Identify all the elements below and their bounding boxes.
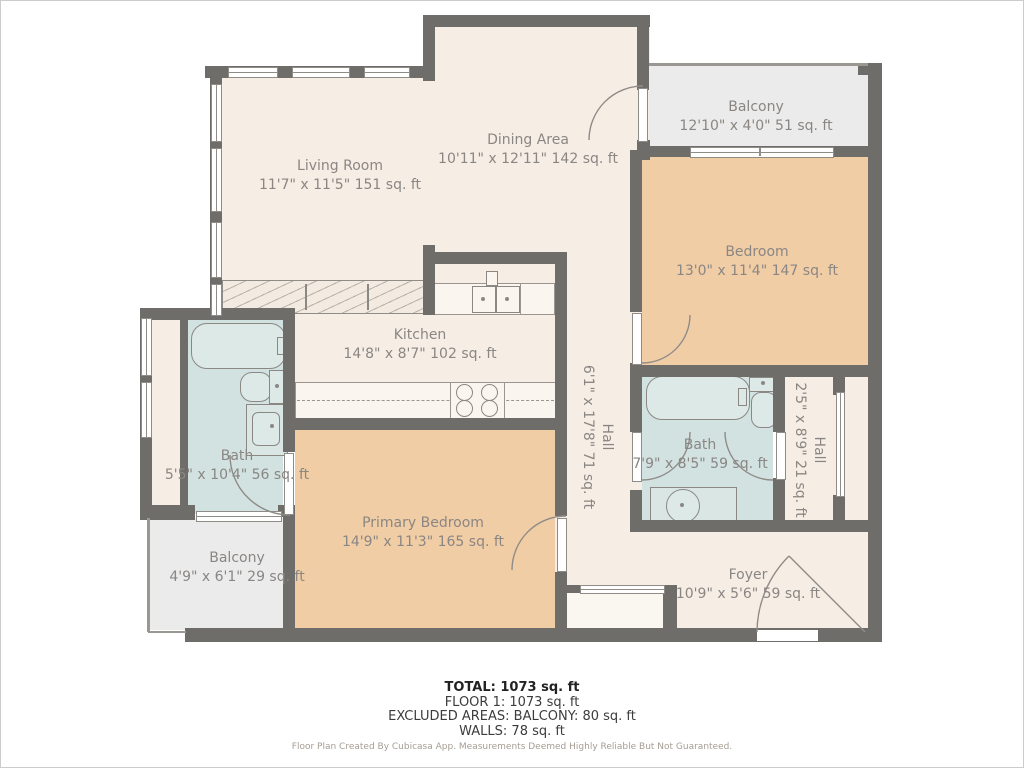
room-label-bedroom: Bedroom 13'0" x 11'4" 147 sq. ft [676,243,838,281]
room-dims: 14'9" x 11'3" 165 sq. ft [342,533,504,552]
room-dims: 6'1" x 17'8" 71 sq. ft [578,365,597,509]
room-name: Living Room [259,157,421,176]
room-name: Bath [632,436,767,455]
room-dims: 5'5" x 10'4" 56 sq. ft [165,466,309,485]
room-dims: 2'5" x 8'9" 21 sq. ft [790,382,809,517]
room-dims: 7'9" x 8'5" 59 sq. ft [632,455,767,474]
summary-excluded: EXCLUDED AREAS: BALCONY: 80 sq. ft [0,710,1024,725]
room-label-dining-area: Dining Area 10'11" x 12'11" 142 sq. ft [438,131,618,169]
room-label-foyer: Foyer 10'9" x 5'6" 59 sq. ft [676,566,820,604]
room-name: Primary Bedroom [342,514,504,533]
footer-credit: Floor Plan Created By Cubicasa App. Meas… [0,742,1024,752]
room-dims: 11'7" x 11'5" 151 sq. ft [259,176,421,195]
room-name: Balcony [679,98,832,117]
room-name: Kitchen [343,326,496,345]
room-dims: 10'9" x 5'6" 59 sq. ft [676,585,820,604]
summary-walls: WALLS: 78 sq. ft [0,725,1024,740]
room-label-bath-right: Bath 7'9" x 8'5" 59 sq. ft [632,436,767,474]
room-label-balcony-top: Balcony 12'10" x 4'0" 51 sq. ft [679,98,832,136]
floor-plan-canvas: Living Room 11'7" x 11'5" 151 sq. ft Din… [0,0,1024,768]
door-arc [642,315,690,363]
area-summary: TOTAL: 1073 sq. ft FLOOR 1: 1073 sq. ft … [0,681,1024,739]
room-dims: 10'11" x 12'11" 142 sq. ft [438,150,618,169]
room-dims: 12'10" x 4'0" 51 sq. ft [679,117,832,136]
room-label-balcony-bottom: Balcony 4'9" x 6'1" 29 sq. ft [169,549,304,587]
room-name: Bedroom [676,243,838,262]
summary-total: TOTAL: 1073 sq. ft [0,681,1024,696]
room-label-primary-bedroom: Primary Bedroom 14'9" x 11'3" 165 sq. ft [342,514,504,552]
room-label-living-room: Living Room 11'7" x 11'5" 151 sq. ft [259,157,421,195]
room-name: Balcony [169,549,304,568]
door-arc [512,516,566,570]
room-label-hall-right: Hall 2'5" x 8'9" 21 sq. ft [790,382,828,517]
room-name: Hall [597,365,616,509]
room-dims: 14'8" x 8'7" 102 sq. ft [343,345,496,364]
room-dims: 4'9" x 6'1" 29 sq. ft [169,568,304,587]
room-name: Bath [165,447,309,466]
room-name: Hall [809,382,828,517]
door-arcs-layer [0,0,1024,768]
room-label-hall-center: Hall 6'1" x 17'8" 71 sq. ft [578,365,616,509]
room-name: Dining Area [438,131,618,150]
room-dims: 13'0" x 11'4" 147 sq. ft [676,262,838,281]
room-label-kitchen: Kitchen 14'8" x 8'7" 102 sq. ft [343,326,496,364]
room-name: Foyer [676,566,820,585]
room-label-bath-left: Bath 5'5" x 10'4" 56 sq. ft [165,447,309,485]
summary-floor: FLOOR 1: 1073 sq. ft [0,696,1024,711]
